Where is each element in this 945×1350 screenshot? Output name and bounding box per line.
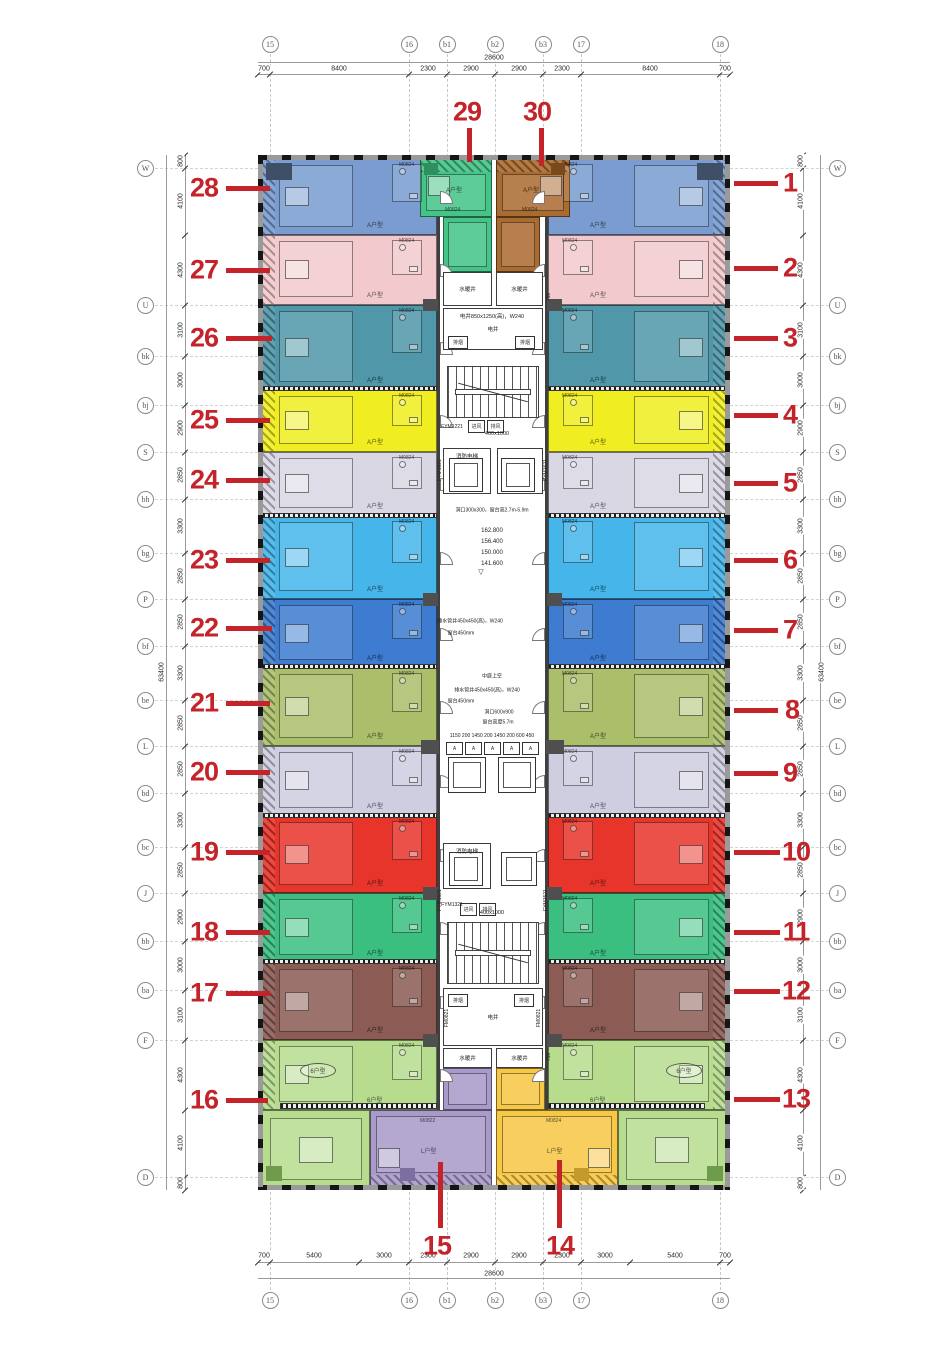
dim-top-700-264: 700: [257, 66, 271, 73]
unit-5-sink-icon: [580, 480, 589, 486]
grid-line-row-bc-right: [730, 847, 829, 848]
unit-15-door-tag: M0822: [420, 1118, 435, 1124]
unit-18-type-label: A户型: [367, 948, 383, 957]
dim-left-2850-769: 2850: [178, 760, 185, 778]
pier-10: [423, 593, 438, 606]
grid-bubble-right-be: be: [829, 692, 846, 709]
grid-line-row-bf-left: [155, 646, 258, 647]
core-room-label-6: 电井: [487, 1013, 498, 1021]
grid-line-row-F-left: [155, 1040, 258, 1041]
unit-number-22: 22: [190, 615, 218, 642]
dim-right-800-1183: 800: [798, 1176, 805, 1190]
unit-3-sink-icon: [580, 344, 589, 350]
grid-line-row-S-right: [730, 452, 829, 453]
unit-4-type-label: A户型: [590, 437, 606, 446]
unit-18-sink-icon: [409, 924, 418, 930]
unit-24-bed: [285, 474, 309, 493]
unit-20-door-tag: M0824: [399, 749, 414, 755]
grid-bubble-right-J: J: [829, 885, 846, 902]
grid-bubble-left-S: S: [137, 444, 154, 461]
leader-line-16: [226, 1098, 268, 1103]
unit-6-toilet-icon: [570, 525, 577, 532]
dim-right-3300-820: 3300: [798, 811, 805, 829]
unit-4-toilet-icon: [570, 399, 577, 406]
unit-28-door-tag: M0824: [399, 162, 414, 168]
unit-22-bed: [285, 624, 309, 643]
shaft-hatch-0: [262, 386, 437, 391]
grid-line-row-F-right: [730, 1040, 829, 1041]
unit-22-toilet-icon: [399, 608, 406, 615]
elevator-car-4: [454, 857, 478, 881]
grid-line-row-J-left: [155, 893, 258, 894]
unit-23-toilet-icon: [399, 525, 406, 532]
core-note-26: 750: [546, 1053, 552, 1061]
unit-1-bed: [679, 187, 703, 206]
unit-27-door-tag: M0824: [399, 238, 414, 244]
elevator-car-5: [506, 857, 532, 881]
leader-line-18: [226, 930, 270, 935]
leader-line-23: [226, 558, 270, 563]
grid-bubble-right-S: S: [829, 444, 846, 461]
dim-right-3000-965: 3000: [798, 956, 805, 974]
unit-number-14: 14: [546, 1233, 574, 1260]
unit-18-toilet-icon: [399, 902, 406, 909]
dim-top-2900-519: 2900: [510, 66, 528, 73]
dim-left-3100-1015: 3100: [178, 1006, 185, 1024]
unit-6-sink-icon: [580, 554, 589, 560]
dim-top-2300-562: 2300: [553, 66, 571, 73]
unit-16-type-oval: 6户型: [300, 1063, 336, 1078]
dim-left-2900-917: 2900: [178, 908, 185, 926]
unit-24-balcony: [263, 453, 275, 515]
unit-10-toilet-icon: [570, 825, 577, 832]
leader-line-21: [226, 701, 270, 706]
grid-line-row-bh-right: [730, 499, 829, 500]
unit-1-type-label: A户型: [590, 220, 606, 229]
grid-bubble-left-ba: ba: [137, 982, 154, 999]
leader-line-20: [226, 770, 270, 775]
unit-6-door-tag: M0824: [562, 519, 577, 525]
unit-4-bed: [679, 411, 703, 430]
unit-10-balcony: [713, 817, 725, 892]
unit-number-4: 4: [783, 402, 797, 429]
unit-2-sink-icon: [580, 266, 589, 272]
unit-26-sink-icon: [409, 344, 418, 350]
core-note-10: ▽: [478, 568, 483, 576]
unit-9-door-tag: M0824: [562, 749, 577, 755]
core-room-label-8: 水暖井: [511, 1054, 528, 1062]
unit-3-toilet-icon: [570, 314, 577, 321]
dim-bottom-2900-471: 2900: [462, 1253, 480, 1260]
grid-bubble-left-bh: bh: [137, 491, 154, 508]
dim-right-4100-1143: 4100: [798, 1134, 805, 1152]
leader-line-4: [734, 413, 778, 418]
pier-7: [574, 1168, 589, 1181]
leader-line-11: [734, 930, 780, 935]
unit-22-door-tag: M0824: [399, 602, 414, 608]
unit-15-ext-room: [448, 1073, 487, 1105]
unit-number-9: 9: [783, 760, 797, 787]
core-note-3: FYM1521: [437, 459, 443, 481]
core-note-4: FYM1521: [543, 459, 549, 481]
unit-16-door-tag: M0824: [399, 1043, 414, 1049]
shaft-hatch-5: [548, 664, 726, 669]
grid-bubble-right-W: W: [829, 160, 846, 177]
unit-11-toilet-icon: [570, 902, 577, 909]
unit-21-door-tag: M0824: [399, 671, 414, 677]
unit-number-24: 24: [190, 467, 218, 494]
unit-17-balcony: [263, 964, 275, 1039]
dim-left-2900-428: 2900: [178, 419, 185, 437]
grid-bubble-bottom-16: 16: [401, 1292, 418, 1309]
leader-line-19: [226, 850, 270, 855]
leader-line-10: [734, 850, 780, 855]
unit-4-sink-icon: [580, 417, 589, 423]
grid-line-row-P-left: [155, 599, 258, 600]
unit-11-sink-icon: [580, 924, 589, 930]
core-note-23: FM0821: [444, 1009, 450, 1027]
leader-line-29: [467, 128, 472, 162]
dim-left-800-1183: 800: [178, 1176, 185, 1190]
grid-line-row-D-left: [155, 1177, 258, 1178]
unit-26-balcony: [263, 306, 275, 389]
leader-line-15: [438, 1162, 443, 1228]
unit-number-2: 2: [783, 255, 797, 282]
unit-number-10: 10: [782, 839, 810, 866]
unit-9-bed: [679, 771, 703, 790]
louver-1: A: [465, 742, 482, 755]
unit-11-bed: [679, 918, 703, 937]
unit-number-19: 19: [190, 839, 218, 866]
unit-number-17: 17: [190, 980, 218, 1007]
grid-bubble-right-bk: bk: [829, 348, 846, 365]
dim-left-2850-475: 2850: [178, 466, 185, 484]
unit-10-door-tag: M0824: [562, 819, 577, 825]
core-note-15: 窗台450mm: [448, 698, 475, 705]
dim-right-3000-380: 3000: [798, 371, 805, 389]
unit-9-toilet-icon: [570, 755, 577, 762]
unit-number-13: 13: [782, 1086, 810, 1113]
unit-number-27: 27: [190, 257, 218, 284]
unit-4-door-tag: M0824: [562, 393, 577, 399]
dim-right-2900-428: 2900: [798, 419, 805, 437]
unit-20-toilet-icon: [399, 755, 406, 762]
unit-17-bed: [285, 992, 309, 1011]
dim-right-2850-475: 2850: [798, 466, 805, 484]
unit-24-type-label: A户型: [367, 501, 383, 510]
unit-9-type-label: A户型: [590, 801, 606, 810]
core-note-2: FYM1221: [441, 424, 463, 430]
unit-8-type-label: A户型: [590, 731, 606, 740]
shaft-hatch-8: [262, 959, 437, 964]
unit-30-ext-room: [501, 222, 535, 267]
core-room-label-0: 水暖井: [459, 285, 476, 293]
pier-12: [421, 740, 439, 754]
leader-line-5: [734, 481, 778, 486]
unit-21-bed: [285, 697, 309, 716]
core-room-label-7: 水暖井: [459, 1054, 476, 1062]
pier-4: [266, 1166, 282, 1181]
leader-line-30: [539, 128, 544, 166]
unit-27-sink-icon: [409, 266, 418, 272]
unit-9-balcony: [713, 747, 725, 815]
pier-11: [547, 593, 562, 606]
shaft-hatch-11: [548, 1103, 705, 1109]
unit-25-type-label: A户型: [367, 437, 383, 446]
unit-5-balcony: [713, 453, 725, 515]
unit-6-type-label: A户型: [590, 584, 606, 593]
dim-total-right: 63400: [819, 661, 826, 682]
unit-2-bed: [679, 260, 703, 279]
unit-10-type-label: A户型: [590, 878, 606, 887]
dim-total-top-line: [258, 62, 730, 63]
leader-line-8: [734, 708, 778, 713]
dim-total-bottom-line: [258, 1278, 730, 1279]
pier-17: [547, 1034, 562, 1047]
dim-bottom-700-264: 700: [257, 1253, 271, 1260]
unit-number-8: 8: [785, 697, 799, 724]
unit-number-11: 11: [783, 919, 810, 946]
unit-19-sink-icon: [409, 851, 418, 857]
unit-1-toilet-icon: [570, 168, 577, 175]
wall-right: [725, 155, 730, 1190]
unit-13-door-tag: M0824: [562, 1043, 577, 1049]
pier-6: [400, 1168, 415, 1181]
shaft-hatch-3: [548, 513, 726, 518]
unit-number-3: 3: [783, 325, 797, 352]
grid-bubble-top-15: 15: [262, 36, 279, 53]
unit-21-sink-icon: [409, 703, 418, 709]
leader-line-6: [734, 558, 778, 563]
unit-13-sink-icon: [580, 1071, 589, 1077]
unit-7-bed: [679, 624, 703, 643]
leader-line-28: [226, 186, 270, 191]
unit-20-bed: [285, 771, 309, 790]
dim-right-3100-1015: 3100: [798, 1006, 805, 1024]
grid-bubble-right-bb: bb: [829, 933, 846, 950]
shaft-hatch-6: [262, 813, 437, 818]
elevator-car-3: [503, 762, 531, 788]
unit-15-bed: [378, 1148, 400, 1168]
dim-right-2850-769: 2850: [798, 760, 805, 778]
unit-number-6: 6: [783, 547, 797, 574]
unit-number-25: 25: [190, 407, 218, 434]
unit-9-sink-icon: [580, 777, 589, 783]
grid-line-row-W-right: [730, 168, 829, 169]
grid-line-row-U-left: [155, 305, 258, 306]
unit-number-5: 5: [783, 470, 797, 497]
shaft-hatch-10: [280, 1103, 437, 1109]
unit-14-door-tag: M0824: [546, 1118, 561, 1124]
unit-28-bed: [285, 187, 309, 206]
dim-left-4100-1143: 4100: [178, 1134, 185, 1152]
grid-line-row-bj-right: [730, 405, 829, 406]
elevator-car-0: [454, 463, 478, 487]
unit-number-18: 18: [190, 919, 218, 946]
unit-4-balcony: [713, 391, 725, 451]
unit-3-balcony: [713, 306, 725, 389]
unit-2-toilet-icon: [570, 244, 577, 251]
grid-bubble-left-bj: bj: [137, 397, 154, 414]
grid-bubble-top-18: 18: [712, 36, 729, 53]
unit-11-balcony: [713, 894, 725, 962]
unit-23-bed: [285, 548, 309, 567]
unit-15-type-label: L户型: [421, 1146, 436, 1155]
core-room-label-1: 水暖井: [511, 285, 528, 293]
unit-13-ext-bed: [655, 1137, 689, 1163]
unit-22-sink-icon: [409, 630, 418, 636]
core-note-18: 1150 200 1450 200 1450 200 600 450: [450, 733, 534, 739]
grid-bubble-left-W: W: [137, 160, 154, 177]
unit-23-type-label: A户型: [367, 584, 383, 593]
dim-total-top: 28600: [483, 55, 504, 62]
grid-bubble-left-J: J: [137, 885, 154, 902]
leader-line-2: [734, 266, 778, 271]
grid-bubble-left-bd: bd: [137, 785, 154, 802]
grid-bubble-right-P: P: [829, 591, 846, 608]
grid-line-row-P-right: [730, 599, 829, 600]
grid-bubble-left-P: P: [137, 591, 154, 608]
unit-25-door-tag: M0824: [399, 393, 414, 399]
grid-line-row-bf-right: [730, 646, 829, 647]
core-note-8: 150.000: [481, 550, 503, 556]
leader-line-14: [557, 1160, 562, 1228]
shaft-hatch-9: [548, 959, 726, 964]
unit-2-type-label: A户型: [590, 290, 606, 299]
grid-bubble-left-bb: bb: [137, 933, 154, 950]
leader-line-24: [226, 478, 270, 483]
grid-bubble-left-be: be: [137, 692, 154, 709]
unit-7-door-tag: M0824: [562, 602, 577, 608]
core-note-7: 156.400: [481, 539, 503, 545]
louver-0: A: [446, 742, 463, 755]
grid-bubble-left-bc: bc: [137, 839, 154, 856]
unit-20-type-label: A户型: [367, 801, 383, 810]
unit-25-sink-icon: [409, 417, 418, 423]
unit-number-30: 30: [523, 99, 551, 126]
unit-number-15: 15: [423, 1233, 451, 1260]
unit-30-door-tag: M0824: [522, 207, 537, 213]
unit-20-sink-icon: [409, 777, 418, 783]
unit-2-door-tag: M0824: [562, 238, 577, 244]
grid-bubble-bottom-18: 18: [712, 1292, 729, 1309]
unit-11-type-label: A户型: [590, 948, 606, 957]
unit-26-bed: [285, 338, 309, 357]
core-note-0: 电井850x1250(高)，W240: [460, 312, 524, 320]
unit-24-sink-icon: [409, 480, 418, 486]
grid-line-row-D-right: [730, 1177, 829, 1178]
grid-bubble-left-F: F: [137, 1032, 154, 1049]
unit-2-balcony: [713, 236, 725, 304]
unit-28-type-label: A户型: [367, 220, 383, 229]
dim-left-3000-965: 3000: [178, 956, 185, 974]
grid-bubble-right-F: F: [829, 1032, 846, 1049]
pier-3: [551, 163, 565, 175]
unit-19-door-tag: M0824: [399, 819, 414, 825]
unit-21-toilet-icon: [399, 677, 406, 684]
pier-13: [546, 740, 564, 754]
grid-bubble-left-bg: bg: [137, 545, 154, 562]
dim-bottom-5400-675: 5400: [666, 1253, 684, 1260]
unit-number-1: 1: [783, 170, 797, 197]
grid-line-row-bd-right: [730, 793, 829, 794]
unit-16-sink-icon: [409, 1071, 418, 1077]
grid-bubble-bottom-15: 15: [262, 1292, 279, 1309]
unit-6-bed: [679, 548, 703, 567]
grid-line-row-bk-right: [730, 356, 829, 357]
dim-left-2850-870: 2850: [178, 861, 185, 879]
core-note-12: 窗台450mm: [448, 630, 475, 637]
dim-left-2850-576: 2850: [178, 567, 185, 585]
core-note-21: FYM1521: [437, 889, 443, 911]
leader-line-25: [226, 418, 270, 423]
unit-22-type-label: A户型: [367, 653, 383, 662]
grid-bubble-bottom-b3: b3: [535, 1292, 552, 1309]
floor-plan-canvas: 15151616b1b1b2b2b3b317171818WWUUbkbkbjbj…: [0, 0, 945, 1350]
grid-bubble-right-bg: bg: [829, 545, 846, 562]
grid-line-row-bb-right: [730, 941, 829, 942]
unit-14-bed: [588, 1148, 610, 1168]
grid-bubble-right-bd: bd: [829, 785, 846, 802]
unit-17-toilet-icon: [399, 972, 406, 979]
unit-7-toilet-icon: [570, 608, 577, 615]
unit-23-sink-icon: [409, 554, 418, 560]
core-note-14: 排水管井450x450(高)，W240: [454, 687, 520, 694]
unit-8-balcony: [713, 669, 725, 745]
unit-24-door-tag: M0824: [399, 455, 414, 461]
core-note-16: 洞口600x900: [484, 709, 513, 716]
unit-3-type-label: A户型: [590, 375, 606, 384]
grid-line-row-bd-left: [155, 793, 258, 794]
unit-29-door-tag: M0824: [445, 207, 460, 213]
unit-12-bed: [679, 992, 703, 1011]
unit-3-door-tag: M0824: [562, 308, 577, 314]
unit-19-bed: [285, 845, 309, 864]
leader-line-26: [226, 336, 272, 341]
core-room-label-3: 消防电梯: [456, 452, 478, 460]
unit-21-balcony: [263, 669, 275, 745]
grid-line-row-J-right: [730, 893, 829, 894]
dim-bottom-700-725: 700: [718, 1253, 732, 1260]
unit-16-toilet-icon: [399, 1049, 406, 1056]
grid-bubble-left-L: L: [137, 738, 154, 755]
vent-6: 排烟: [448, 994, 468, 1007]
grid-bubble-right-bh: bh: [829, 491, 846, 508]
leader-line-1: [734, 181, 778, 186]
wall-top: [258, 155, 730, 160]
dim-right-4300-270: 4300: [798, 261, 805, 279]
grid-line-row-L-right: [730, 746, 829, 747]
grid-bubble-top-b1: b1: [439, 36, 456, 53]
core-note-5: 洞口300x300，窗台高2.7m-5.9m: [455, 507, 528, 514]
unit-number-7: 7: [783, 617, 797, 644]
grid-bubble-right-ba: ba: [829, 982, 846, 999]
grid-line-row-bg-right: [730, 553, 829, 554]
unit-16-ext-bed: [299, 1137, 333, 1163]
grid-bubble-bottom-17: 17: [573, 1292, 590, 1309]
dim-left-4100-201: 4100: [178, 192, 185, 210]
elevator-car-1: [506, 463, 530, 487]
unit-28-toilet-icon: [399, 168, 406, 175]
grid-line-row-W-left: [155, 168, 258, 169]
dim-tick-bottom-10: [727, 1259, 733, 1265]
unit-17-type-label: A户型: [367, 1025, 383, 1034]
shaft-hatch-7: [548, 813, 726, 818]
unit-14-type-label: L户型: [547, 1146, 562, 1155]
dim-bottom-3000-384: 3000: [375, 1253, 393, 1260]
unit-number-26: 26: [190, 325, 218, 352]
core-note-25: 750: [546, 293, 552, 301]
